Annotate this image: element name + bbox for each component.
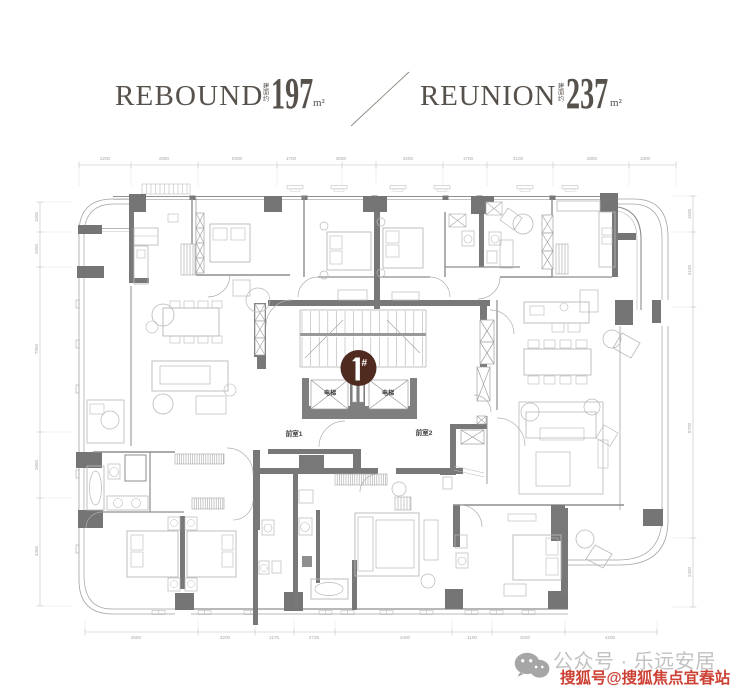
svg-text:1700: 1700 [463,156,474,161]
svg-text:电梯: 电梯 [382,389,395,397]
svg-text:2725: 2725 [309,635,320,640]
svg-text:3200: 3200 [220,635,231,640]
svg-text:1700: 1700 [286,156,297,161]
svg-text:电梯: 电梯 [324,389,337,397]
svg-text:1175: 1175 [269,635,279,640]
svg-text:2850: 2850 [587,156,598,161]
svg-text:1500: 1500 [687,208,692,219]
svg-text:约: 约 [558,95,564,103]
svg-text:5300: 5300 [232,156,243,161]
svg-text:前室2: 前室2 [416,428,433,437]
svg-text:m²: m² [313,97,326,109]
svg-text:4450: 4450 [34,545,39,556]
svg-text:3250: 3250 [403,156,414,161]
svg-text:约: 约 [263,95,269,103]
svg-text:7950: 7950 [34,343,39,354]
svg-text:前室1: 前室1 [286,429,303,438]
svg-text:m²: m² [610,97,623,109]
svg-text:1800: 1800 [640,156,651,161]
svg-text:1500: 1500 [34,211,39,222]
svg-text:2850: 2850 [159,156,170,161]
svg-text:2200: 2200 [100,156,111,161]
svg-text:4550: 4550 [131,635,142,640]
svg-text:4200: 4200 [605,635,616,640]
svg-text:2650: 2650 [34,459,39,470]
svg-text:2050: 2050 [34,243,39,254]
svg-text:3100: 3100 [687,264,692,275]
svg-text:3050: 3050 [336,156,347,161]
svg-text:3250: 3250 [520,635,531,640]
svg-text:237: 237 [566,69,608,118]
svg-text:2400: 2400 [687,566,692,577]
svg-text:REBOUND: REBOUND [115,80,264,112]
svg-text:#: # [362,358,368,369]
svg-text:197: 197 [271,69,313,118]
svg-text:1100: 1100 [467,635,477,640]
svg-text:3100: 3100 [513,156,524,161]
svg-text:4400: 4400 [400,635,411,640]
svg-text:8700: 8700 [687,422,692,433]
svg-text:REUNION: REUNION [420,80,556,112]
